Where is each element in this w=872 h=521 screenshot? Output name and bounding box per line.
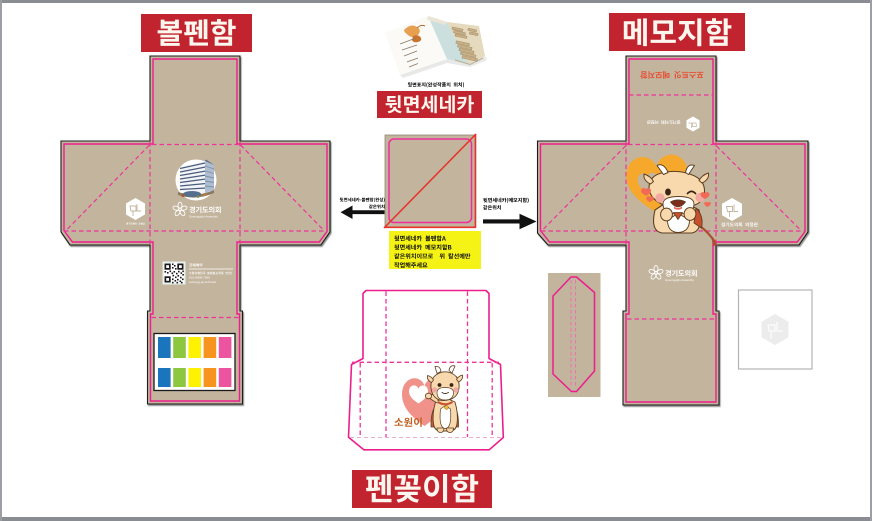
svg-text:www.gg.go.kr/mars/: www.gg.go.kr/mars/	[189, 280, 216, 284]
svg-text:Gyeonggido Assembly: Gyeonggido Assembly	[189, 215, 218, 219]
svg-text:031-8008-7000: 031-8008-7000	[189, 276, 210, 280]
svg-text:Gyeonggido Assembly: Gyeonggido Assembly	[665, 278, 694, 282]
